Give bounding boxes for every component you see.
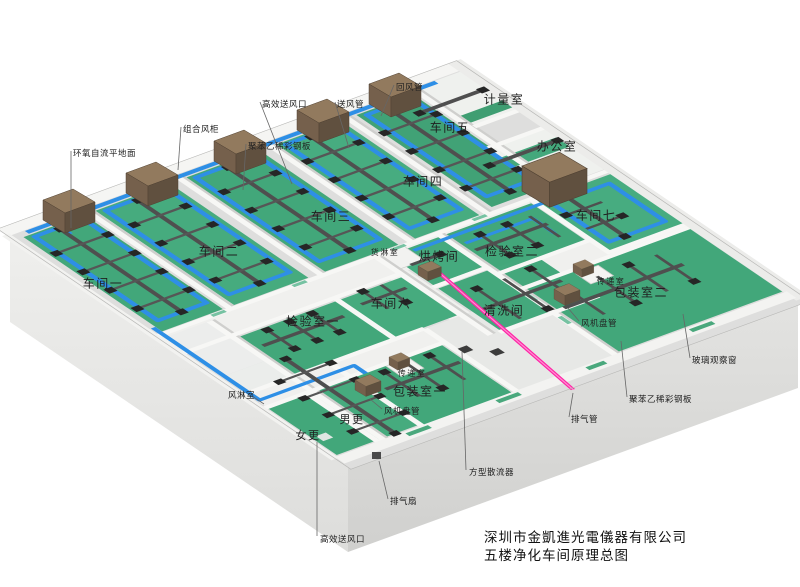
room-label-jiliangshi: 计量室 — [484, 91, 525, 108]
room-label-huolinshi: 货淋室 — [371, 247, 400, 258]
room-label-chuandishi-right: 传递室 — [597, 276, 626, 287]
room-label-cj2: 车间二 — [199, 243, 240, 260]
room-label-qingxijian: 清洗间 — [484, 302, 525, 319]
callout-label-steel-panel-left: 聚苯乙稀彩钢板 — [248, 140, 311, 152]
exhaust-fan-box — [372, 452, 381, 459]
room-label-baozhuangshi1: 包装室一 — [393, 383, 447, 400]
callout-label-ahu-cabinet: 组合风柜 — [183, 123, 219, 135]
callout-label-exhaust-pipe: 排气管 — [571, 413, 598, 425]
room-label-chuandishi-left: 传递室 — [398, 368, 427, 379]
room-label-cj4: 车间四 — [403, 173, 444, 190]
room-label-jianyanshi1: 检验室一 — [286, 313, 340, 330]
callout-label-fan-coil-right: 风机盘管 — [581, 317, 617, 329]
callout-label-epoxy-floor: 环氧自流平地面 — [73, 147, 136, 159]
drawing-title: 五楼净化车间原理总图 — [484, 547, 687, 565]
room-label-cj7: 车间七 — [576, 207, 617, 224]
callout-label-supply-duct: 送风管 — [337, 98, 364, 110]
room-label-cj5: 车间五 — [430, 119, 471, 136]
room-label-bangongshi: 办公室 — [537, 138, 578, 155]
callout-label-steel-panel-right: 聚苯乙稀彩钢板 — [629, 393, 692, 405]
callout-label-square-diffuser: 方型散流器 — [469, 466, 514, 478]
room-label-nangeng: 男更 — [340, 411, 365, 427]
title-block: 深圳市金凱進光電儀器有限公司 五楼净化车间原理总图 — [484, 529, 687, 565]
callout-label-glass-window: 玻璃观察窗 — [692, 354, 737, 366]
room-label-cj3: 车间三 — [311, 208, 352, 225]
room-label-jianyanshi2: 检验室二 — [485, 243, 539, 260]
room-label-cj6: 车间六 — [371, 295, 412, 312]
callout-label-hepa-outlet-bottom: 高效送风口 — [320, 533, 365, 545]
callout-label-hepa-outlet-top: 高效送风口 — [262, 98, 307, 110]
company-name: 深圳市金凱進光電儀器有限公司 — [484, 529, 687, 547]
callout-label-return-duct: 回风管 — [396, 81, 423, 93]
callout-label-fan-coil-left: 风机盘管 — [384, 405, 420, 417]
callout-label-air-shower: 风淋室 — [228, 389, 255, 401]
room-label-cj1: 车间一 — [83, 275, 124, 292]
diagram-canvas: 车间一车间二车间三车间四车间五车间六车间七计量室办公室检验室一检验室二烘烤间清洗… — [0, 0, 800, 587]
room-label-hongkaojian: 烘烤间 — [419, 248, 460, 265]
callout-label-exhaust-fan: 排气扇 — [390, 495, 417, 507]
room-label-nvgeng: 女更 — [296, 427, 321, 443]
